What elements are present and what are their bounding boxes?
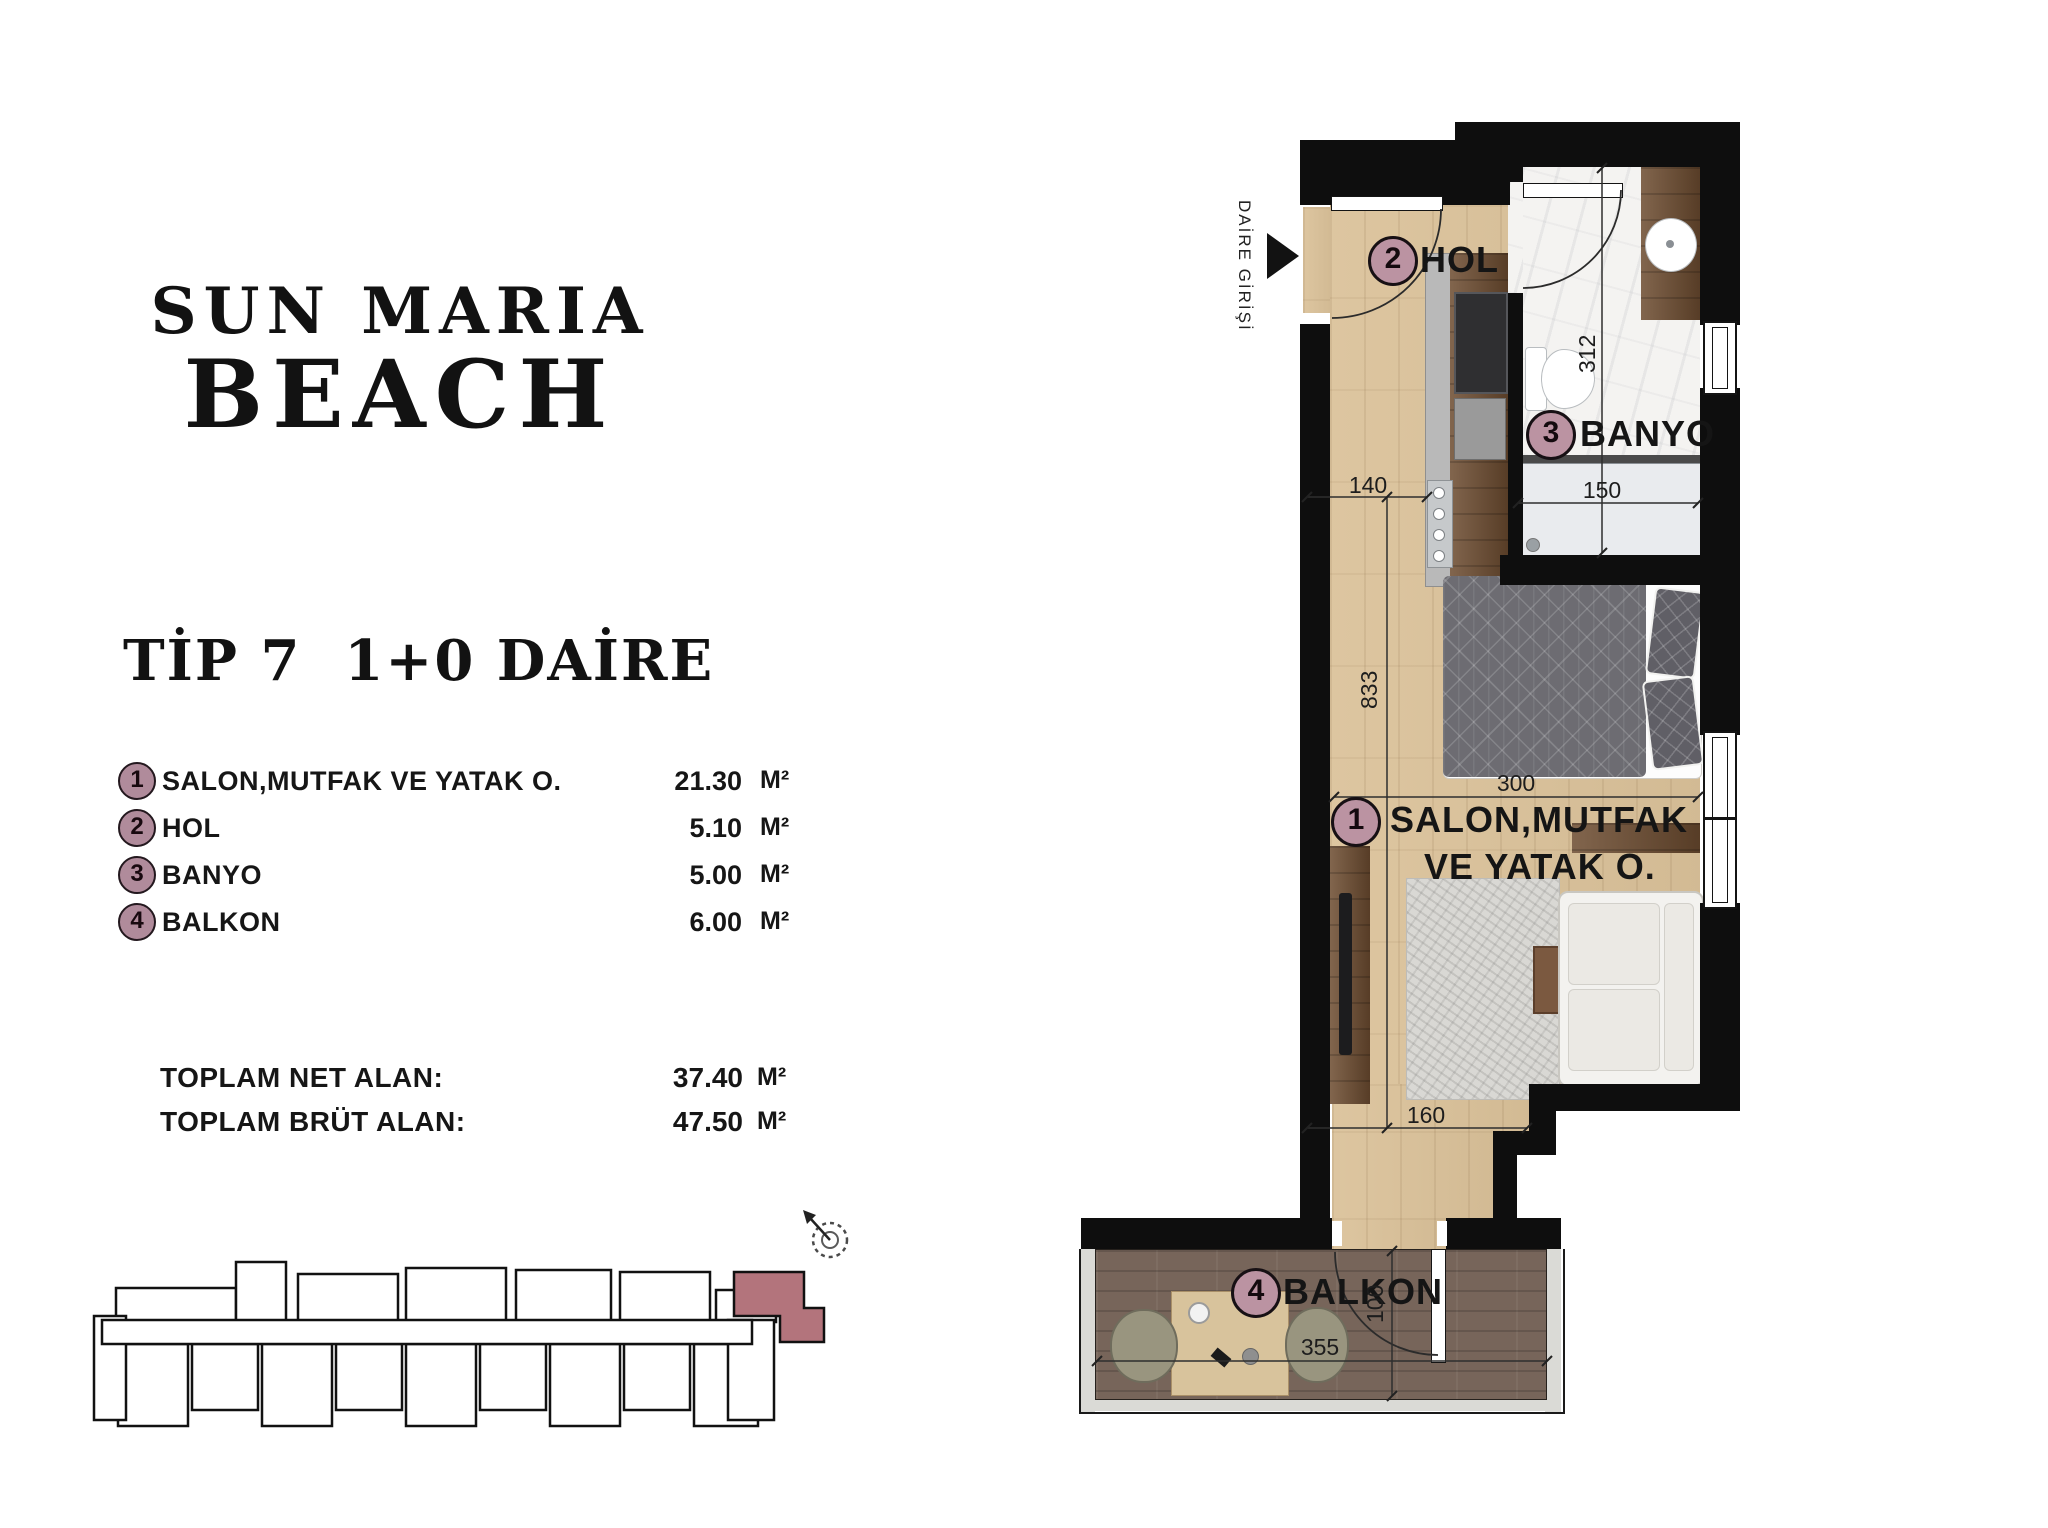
legend-unit-3: M² (760, 860, 789, 889)
wall-left (1300, 324, 1330, 1222)
wall-left-above-entrance (1300, 140, 1330, 196)
sofa (1558, 891, 1704, 1087)
stove-burner-1 (1433, 487, 1445, 499)
total-net-unit: M² (757, 1063, 786, 1092)
balcony-cup (1188, 1302, 1210, 1324)
wall-bath-left-upper (1508, 125, 1523, 182)
legend-value-4: 6.00 (118, 907, 742, 938)
bed-pillow-1 (1645, 586, 1705, 679)
project-title-line1: SUN MARIA (110, 280, 690, 344)
dim-hall-width: 140 (1338, 472, 1398, 499)
legend-row-salon: 1SALON,MUTFAK VE YATAK O. 21.30 M² (118, 762, 808, 809)
bed-pillow-2 (1642, 675, 1705, 771)
kitchen-appliance (1454, 398, 1506, 460)
shower-drain (1526, 538, 1540, 552)
hol-label: HOL (1420, 239, 1499, 281)
entrance-label: DAİRE GİRİŞİ (1234, 200, 1254, 340)
oven (1454, 292, 1508, 394)
stove-burner-3 (1433, 529, 1445, 541)
legend-value-3: 5.00 (118, 860, 742, 891)
floor-balcony-doorway (1332, 1218, 1446, 1249)
salon-window-frame (1712, 737, 1728, 903)
wall-step-band1 (1529, 1084, 1740, 1111)
balcony-door-jamb-right (1437, 1221, 1447, 1246)
unit-type-heading: TİP 7 1+0 DAİRE (123, 628, 714, 694)
floor-bathroom-doorway (1508, 182, 1523, 293)
sofa-cushion-2 (1568, 989, 1660, 1071)
balcony-chair-left (1110, 1309, 1178, 1383)
total-net-row: TOPLAM NET ALAN: 37.40 M² (160, 1062, 850, 1106)
dim-bath-width: 150 (1572, 477, 1632, 504)
tv (1339, 893, 1352, 1055)
floor-salon-step2 (1332, 1131, 1493, 1218)
wall-salon-right-upper (1700, 560, 1740, 735)
entrance-door-leaf (1331, 196, 1443, 211)
wall-balcony-left-of-door (1081, 1218, 1332, 1249)
plan-badge-salon: 1 (1331, 797, 1381, 847)
legend-unit-1: M² (760, 766, 789, 795)
wall-salon-right-lower (1700, 903, 1740, 1111)
dim-balcony-depth: 100 (1362, 1272, 1389, 1336)
stove-burner-2 (1433, 508, 1445, 520)
wall-balcony-right-of-door (1446, 1218, 1561, 1249)
legend-row-balkon: 4BALKON 6.00 M² (118, 903, 808, 950)
balcony-ashtray (1242, 1348, 1259, 1365)
floorplan-page: SUN MARIA BEACH TİP 7 1+0 DAİRE 1SALON,M… (0, 0, 2048, 1528)
legend-unit-4: M² (760, 907, 789, 936)
bathroom-door-leaf (1523, 183, 1623, 198)
project-title: SUN MARIA BEACH (110, 280, 690, 442)
legend-row-banyo: 3BANYO 5.00 M² (118, 856, 808, 903)
legend-value-2: 5.10 (118, 813, 742, 844)
banyo-label: BANYO (1580, 413, 1715, 455)
floor-entrance-recess (1303, 207, 1330, 313)
legend-value-1: 21.30 (118, 766, 742, 797)
plan-badge-banyo: 3 (1526, 410, 1576, 460)
entrance-arrow-icon (1267, 233, 1299, 279)
dim-salon-length: 833 (1356, 650, 1383, 730)
salon-label-line1: SALON,MUTFAK (1390, 799, 1688, 841)
balcony-door-jamb-left (1332, 1221, 1342, 1246)
total-net-value: 37.40 (160, 1062, 743, 1094)
wall-bath-right-upper (1700, 122, 1740, 325)
legend-row-hol: 2HOL 5.10 M² (118, 809, 808, 856)
salon-window-mullion (1705, 817, 1735, 820)
salon-label-line2: VE YATAK O. (1424, 846, 1656, 888)
bathroom-window (1703, 321, 1737, 395)
dim-bed-wall: 300 (1486, 770, 1546, 797)
dim-bath-length: 312 (1574, 318, 1601, 390)
total-gross-row: TOPLAM BRÜT ALAN: 47.50 M² (160, 1106, 850, 1150)
bed-duvet (1443, 576, 1646, 777)
sink-faucet (1666, 240, 1674, 248)
wall-bath-left-lower (1508, 293, 1523, 585)
dim-tv-wall: 160 (1396, 1102, 1456, 1129)
legend-unit-2: M² (760, 813, 789, 842)
dim-balcony-length: 355 (1288, 1334, 1352, 1361)
room-legend: 1SALON,MUTFAK VE YATAK O. 21.30 M² 2HOL … (118, 762, 808, 950)
total-gross-unit: M² (757, 1107, 786, 1136)
project-title-line2: BEACH (110, 348, 690, 442)
bathroom-window-frame (1712, 327, 1728, 389)
sofa-cushion-1 (1568, 903, 1660, 985)
salon-window (1703, 731, 1737, 909)
area-totals: TOPLAM NET ALAN: 37.40 M² TOPLAM BRÜT AL… (160, 1062, 850, 1150)
plan-badge-balkon: 4 (1231, 1268, 1281, 1318)
total-gross-value: 47.50 (160, 1106, 743, 1138)
compass-icon (790, 1196, 866, 1272)
plan-badge-hol: 2 (1368, 236, 1418, 286)
wall-top-right (1455, 122, 1740, 167)
sofa-armrest (1664, 903, 1694, 1071)
building-keyplan (88, 1250, 848, 1440)
stove-burner-4 (1433, 550, 1445, 562)
